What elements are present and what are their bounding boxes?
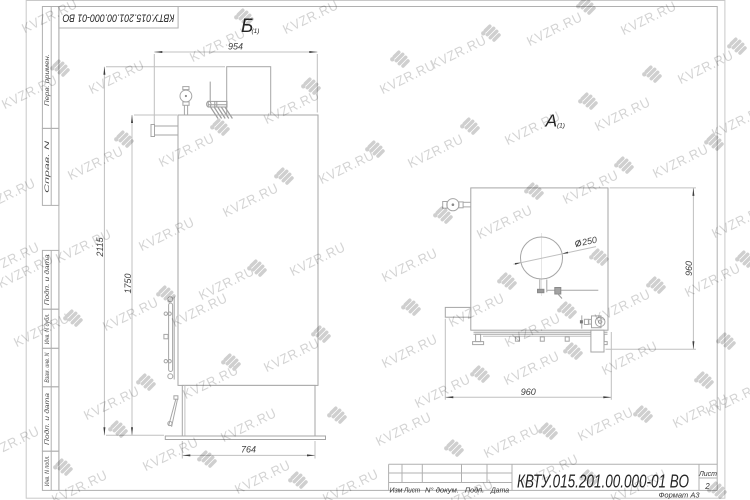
svg-text:Лист: Лист bbox=[698, 471, 717, 478]
svg-text:KVZR.RU: KVZR.RU bbox=[0, 423, 42, 463]
svg-text:KVZR.RU: KVZR.RU bbox=[481, 421, 542, 461]
svg-text:Изм: Изм bbox=[390, 486, 403, 495]
svg-text:KVZR.RU: KVZR.RU bbox=[575, 404, 636, 444]
svg-text:Лист: Лист bbox=[403, 486, 420, 495]
svg-text:KVZR.RU: KVZR.RU bbox=[11, 310, 72, 350]
svg-text:KVZR.RU: KVZR.RU bbox=[280, 0, 341, 37]
svg-text:KVZR.RU: KVZR.RU bbox=[316, 147, 377, 187]
svg-text:KVZR.RU: KVZR.RU bbox=[412, 371, 473, 411]
svg-text:KVZR.RU: KVZR.RU bbox=[501, 348, 562, 388]
svg-text:KVZR.RU: KVZR.RU bbox=[373, 409, 434, 449]
svg-text:KVZR.RU: KVZR.RU bbox=[140, 434, 201, 474]
svg-text:KVZR.RU: KVZR.RU bbox=[592, 94, 653, 134]
svg-text:Справ. N: Справ. N bbox=[45, 140, 51, 193]
svg-text:KVZR.RU: KVZR.RU bbox=[650, 141, 711, 181]
svg-text:960: 960 bbox=[684, 261, 694, 276]
svg-text:KVZR.RU: KVZR.RU bbox=[599, 338, 660, 378]
svg-text:KVZR.RU: KVZR.RU bbox=[0, 175, 38, 215]
svg-text:KVZR.RU: KVZR.RU bbox=[618, 0, 679, 38]
svg-text:764: 764 bbox=[241, 445, 256, 455]
svg-text:KVZR.RU: KVZR.RU bbox=[379, 245, 440, 285]
svg-text:(1): (1) bbox=[252, 28, 260, 35]
svg-text:KVZR.RU: KVZR.RU bbox=[405, 131, 466, 171]
svg-text:Взам. инв. N: Взам. инв. N bbox=[45, 352, 51, 383]
svg-text:960: 960 bbox=[521, 387, 536, 397]
svg-text:KVZR.RU: KVZR.RU bbox=[65, 143, 126, 183]
svg-text:KVZR.RU: KVZR.RU bbox=[320, 466, 381, 500]
svg-text:KVZR.RU: KVZR.RU bbox=[379, 331, 440, 371]
svg-text:KVZR.RU: KVZR.RU bbox=[709, 101, 750, 141]
svg-text:KVZR.RU: KVZR.RU bbox=[709, 201, 750, 241]
svg-text:KVZR.RU: KVZR.RU bbox=[81, 383, 142, 423]
svg-text:KVZR.RU: KVZR.RU bbox=[428, 32, 489, 72]
svg-text:1750: 1750 bbox=[123, 273, 133, 293]
svg-text:КВТУ.015.201.00.000-01 ВО: КВТУ.015.201.00.000-01 ВО bbox=[62, 11, 174, 23]
svg-text:Подп. и дата: Подп. и дата bbox=[45, 392, 51, 445]
svg-text:KVZR.RU: KVZR.RU bbox=[100, 294, 161, 334]
svg-text:Инв. N подл.: Инв. N подл. bbox=[45, 455, 51, 486]
svg-text:KVZR.RU: KVZR.RU bbox=[86, 57, 147, 97]
svg-text:KVZR.RU: KVZR.RU bbox=[675, 47, 736, 87]
svg-text:Формат А3: Формат А3 bbox=[658, 491, 700, 500]
svg-text:KVZR.RU: KVZR.RU bbox=[524, 9, 585, 49]
svg-text:KVZR.RU: KVZR.RU bbox=[232, 457, 293, 497]
